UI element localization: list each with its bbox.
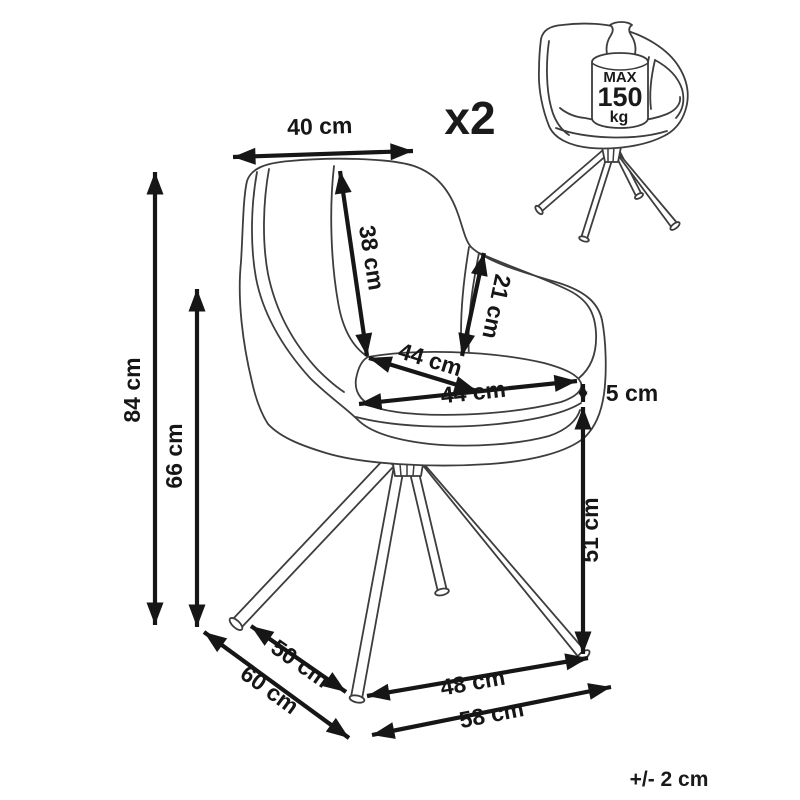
main-chair-drawing: [228, 159, 606, 704]
quantity-label: x2: [444, 92, 495, 144]
dim-label-armrest-floor-height: 66 cm: [161, 423, 187, 488]
dim-label-total-height: 84 cm: [119, 357, 145, 422]
dim-label-base-front-width: 48 cm: [438, 664, 507, 701]
diagram-canvas: MAX 150 kg x2 40 cm 84 cm 66 cm 38 cm 21…: [0, 0, 800, 800]
dim-label-top-width: 40 cm: [287, 112, 353, 140]
dim-label-seat-height: 51 cm: [577, 497, 603, 562]
chair-leg-right: [417, 458, 587, 659]
dim-label-base-outer-width: 58 cm: [457, 695, 526, 733]
tolerance-label: +/- 2 cm: [630, 768, 709, 791]
dimension-diagram: MAX 150 kg x2 40 cm 84 cm 66 cm 38 cm 21…: [0, 0, 800, 800]
small-chair-leg-right: [615, 151, 678, 228]
small-chair-drawing: MAX 150 kg x2: [444, 22, 687, 243]
dim-line-top-width: [233, 151, 413, 157]
small-chair-legs: [534, 147, 681, 243]
weight-unit-label: kg: [610, 109, 629, 126]
dim-label-cushion-thickness: 5 cm: [606, 380, 658, 406]
main-chair-shell: [240, 159, 606, 466]
weight-value-label: 150: [597, 82, 642, 112]
